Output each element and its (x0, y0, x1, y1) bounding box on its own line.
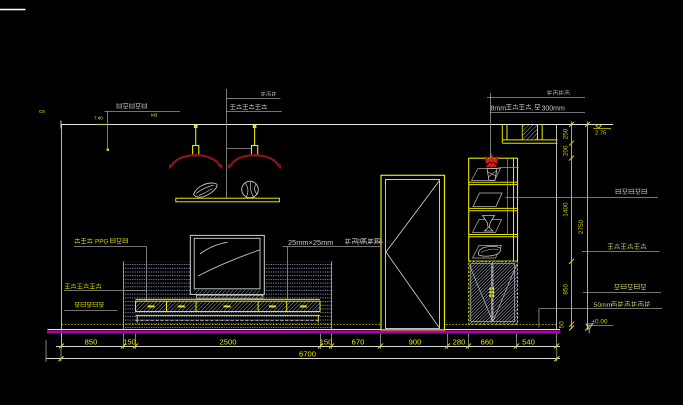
svg-text:,: , (367, 240, 368, 246)
svg-text:300mm: 300mm (542, 106, 566, 113)
svg-text:8mm: 8mm (491, 106, 507, 113)
svg-text:25mm×25mm: 25mm×25mm (288, 238, 333, 247)
svg-text:150: 150 (123, 338, 136, 347)
svg-text:50: 50 (559, 321, 566, 329)
svg-text:7.40: 7.40 (94, 116, 103, 121)
svg-text:C8: C8 (39, 109, 45, 114)
svg-text:660: 660 (481, 338, 494, 347)
svg-text:1400: 1400 (563, 202, 570, 217)
svg-text:150: 150 (320, 338, 333, 347)
svg-text:2.75: 2.75 (595, 130, 606, 136)
svg-text:670: 670 (352, 338, 365, 347)
svg-text:2500: 2500 (220, 338, 237, 347)
svg-text:200: 200 (563, 145, 570, 156)
svg-text:M3: M3 (151, 113, 158, 118)
svg-text:540: 540 (522, 338, 535, 347)
svg-text:6700: 6700 (299, 350, 316, 359)
svg-text:850: 850 (85, 338, 98, 347)
svg-text:2750: 2750 (578, 219, 585, 234)
svg-text:280: 280 (453, 338, 466, 347)
svg-text:±0.00: ±0.00 (592, 319, 608, 326)
svg-text:900: 900 (409, 338, 422, 347)
svg-text:50mm: 50mm (594, 302, 613, 309)
svg-text:850: 850 (563, 284, 570, 295)
svg-text:PPG: PPG (95, 239, 109, 246)
svg-text:250: 250 (563, 128, 570, 139)
